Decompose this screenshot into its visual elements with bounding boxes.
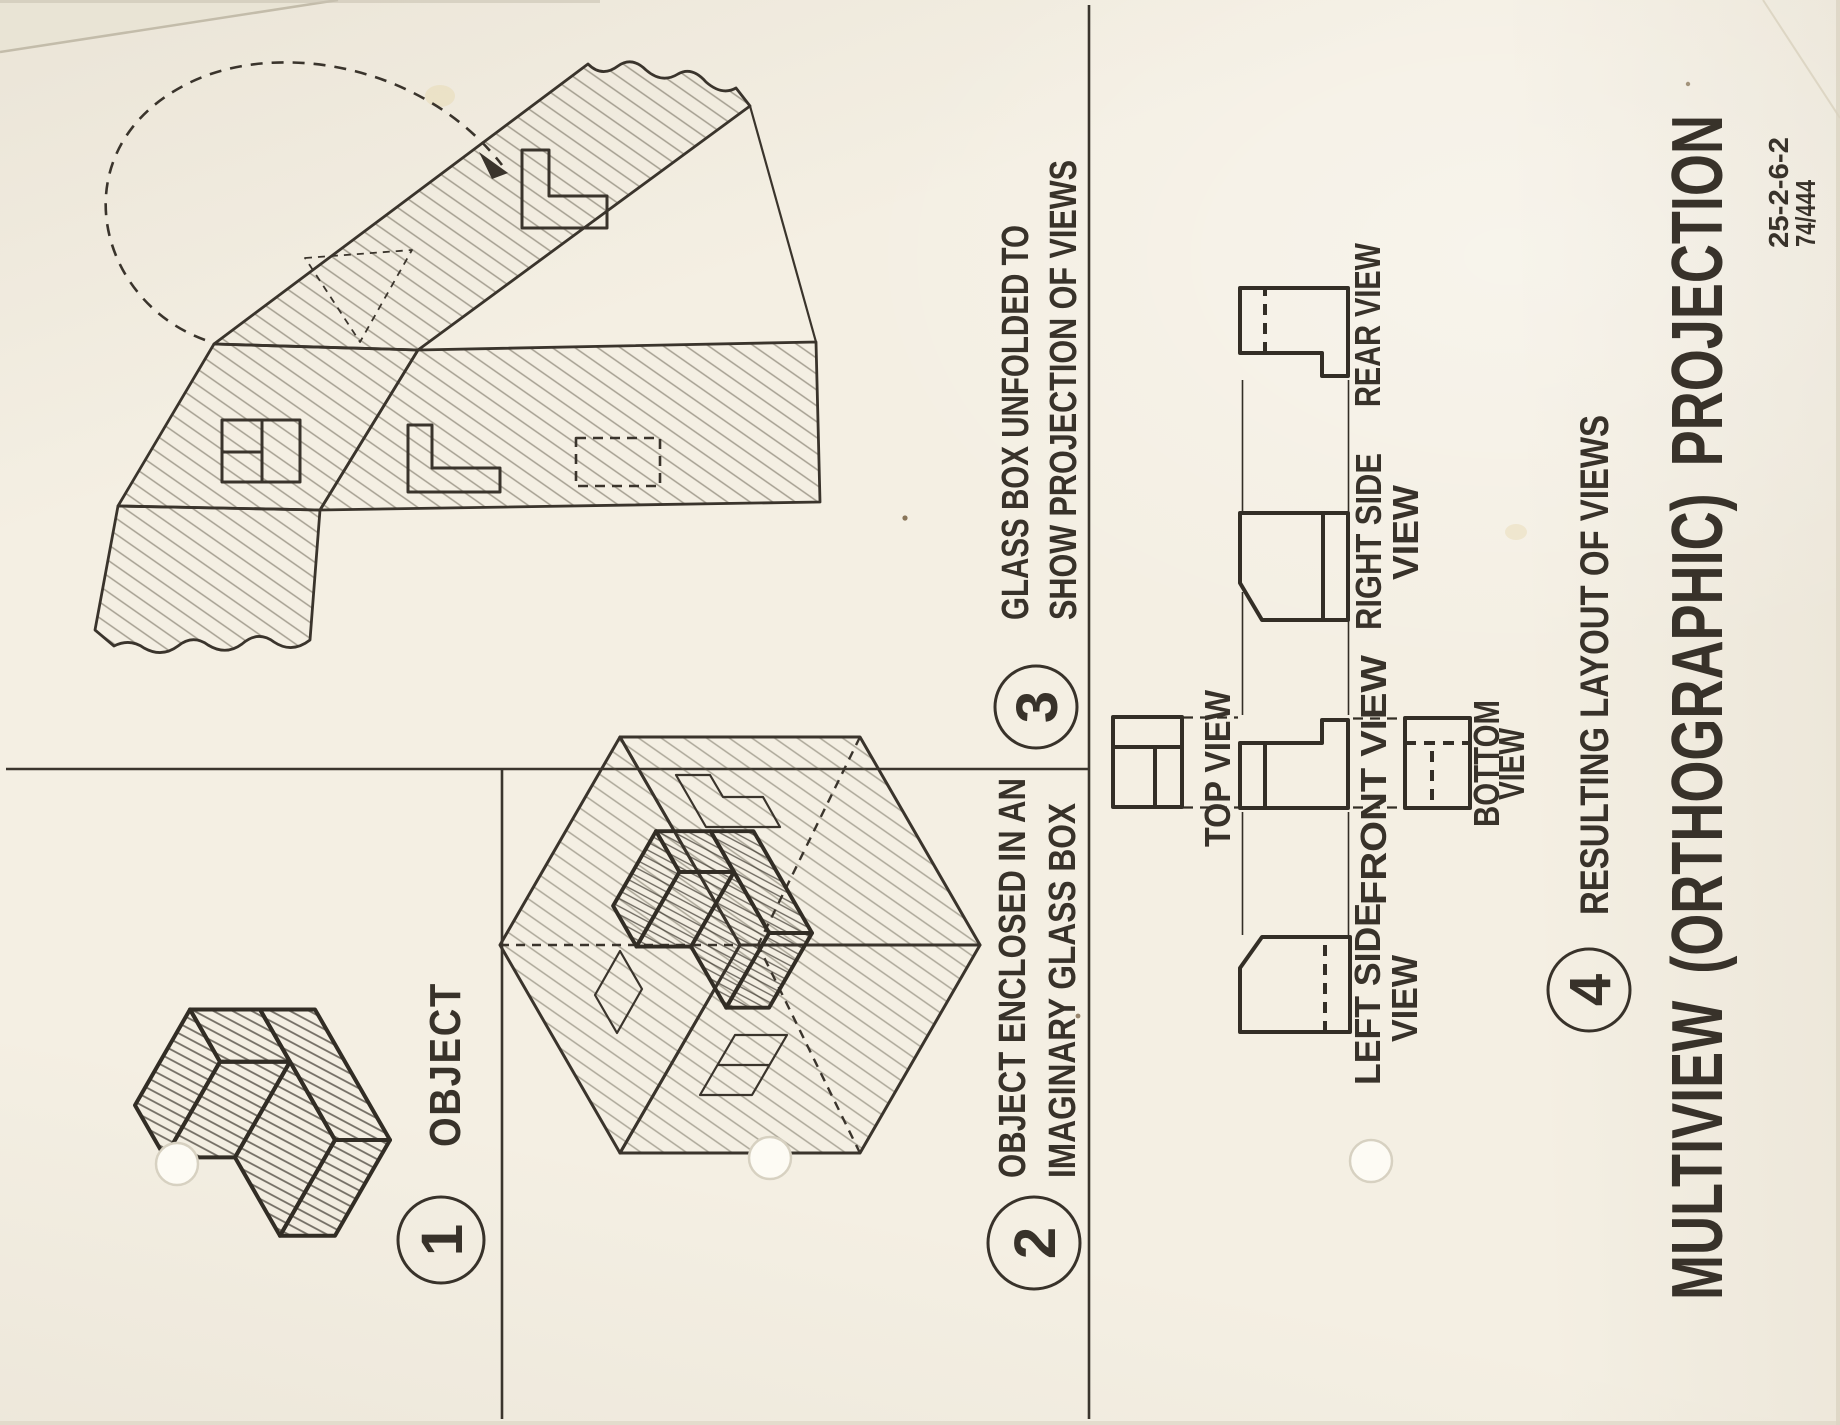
step3-caption-line2: SHOW PROJECTION OF VIEWS — [1043, 160, 1085, 620]
label-rear-view: REAR VIEW — [1347, 243, 1388, 407]
glass-pane-top-torn — [214, 62, 750, 350]
top-view-outline — [1113, 717, 1182, 807]
step1-object-drawing — [135, 1010, 390, 1236]
label-front-view: FRONT VIEW — [1353, 655, 1394, 905]
right-side-view-drawing — [1240, 513, 1348, 620]
step2-caption-line1: OBJECT ENCLOSED IN AN — [992, 778, 1034, 1178]
step2-caption-line2: IMAGINARY GLASS BOX — [1042, 802, 1084, 1178]
step2-glassbox-drawing — [500, 737, 980, 1153]
bottom-view-outline — [1405, 718, 1470, 808]
punch-hole — [1350, 1140, 1392, 1182]
step3-caption-line1: GLASS BOX UNFOLDED TO — [995, 225, 1037, 620]
projection-lines — [1243, 380, 1349, 935]
bottom-view-drawing — [1405, 718, 1470, 808]
left-side-view-outline — [1240, 937, 1350, 1032]
rear-view-drawing — [1240, 288, 1348, 376]
rear-view-outline — [1240, 288, 1348, 376]
top-view-edges — [1113, 747, 1182, 807]
glass-pane-bottom-torn — [95, 506, 320, 653]
stain-speck — [902, 515, 907, 520]
step3-unfolded-glassbox-drawing — [95, 62, 820, 653]
page-title: MULTIVIEW (ORTHOGRAPHIC) PROJECTION — [1658, 115, 1738, 1300]
document-svg: 1 2 3 4 OBJECT OBJECT ENCLOSED IN AN IMA… — [0, 0, 1840, 1425]
punch-hole — [749, 1137, 791, 1179]
front-view-outline — [1240, 720, 1348, 808]
label-bottom-view-line2: VIEW — [1491, 728, 1532, 800]
left-side-view-drawing — [1240, 937, 1350, 1032]
step4-caption: RESULTING LAYOUT OF VIEWS — [1573, 415, 1617, 915]
stain — [425, 85, 455, 107]
scan-edge-bottom — [0, 1421, 1840, 1425]
scan-edge-right — [1836, 0, 1840, 1425]
step1-caption: OBJECT — [421, 982, 470, 1147]
right-side-view-outline — [1240, 513, 1348, 620]
scanned-sheet: 1 2 3 4 OBJECT OBJECT ENCLOSED IN AN IMA… — [0, 0, 1840, 1425]
stain-speck — [1686, 82, 1690, 86]
punch-hole — [156, 1143, 198, 1185]
label-left-side-view-line2: VIEW — [1384, 955, 1425, 1042]
label-left-side-view-line1: LEFT SIDE — [1347, 903, 1388, 1085]
step3-number: 3 — [1005, 691, 1070, 723]
step4-views-drawing — [1113, 288, 1470, 1032]
doc-number-line2: 74/444 — [1790, 180, 1821, 247]
label-right-side-view-line2: VIEW — [1385, 485, 1426, 580]
front-view-drawing — [1240, 720, 1348, 808]
paper-crease-top-right — [1763, 0, 1840, 118]
scan-edge-top — [0, 0, 600, 3]
step4-number: 4 — [1558, 974, 1623, 1006]
glass-fold-edge — [750, 106, 816, 342]
label-top-view: TOP VIEW — [1197, 690, 1238, 847]
bottom-view-hidden-edges — [1405, 743, 1470, 800]
step2-number: 2 — [1003, 1227, 1068, 1259]
label-right-side-view-line1: RIGHT SIDE — [1348, 453, 1389, 630]
step1-number: 1 — [410, 1224, 475, 1256]
stain — [1505, 524, 1527, 540]
top-view-drawing — [1113, 717, 1182, 807]
